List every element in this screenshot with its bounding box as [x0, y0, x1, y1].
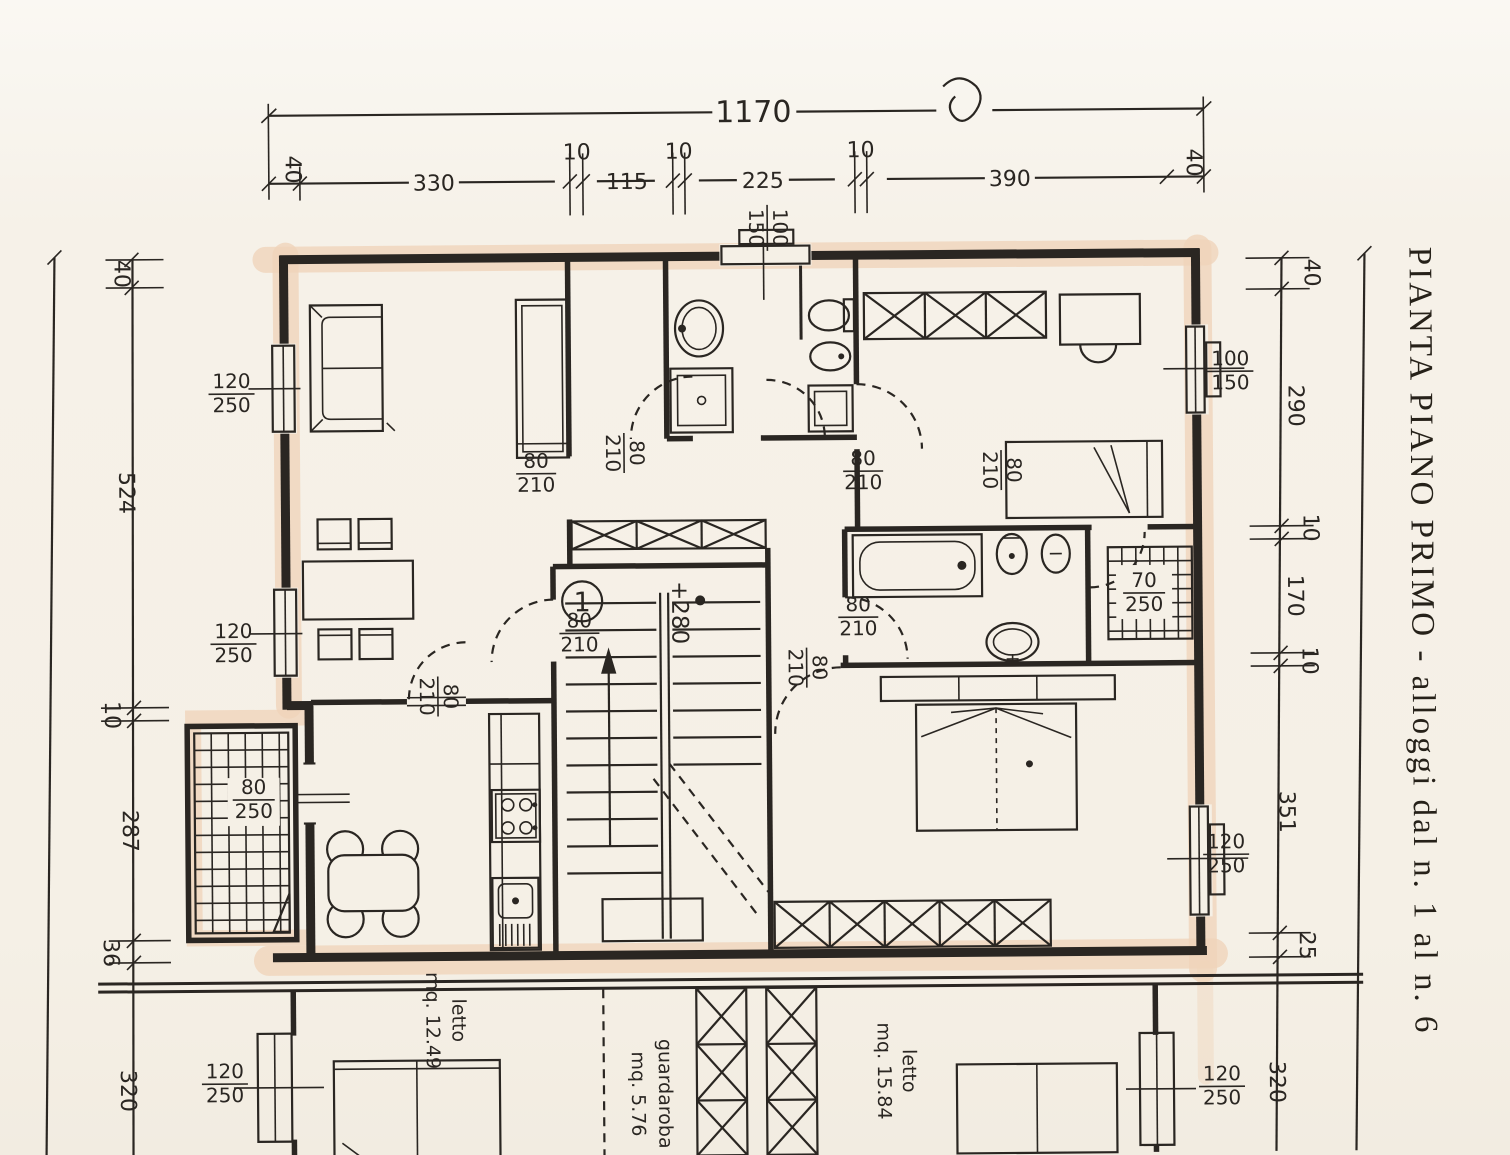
svg-text:250: 250 [214, 643, 252, 667]
svg-text:210: 210 [560, 632, 598, 656]
dim-label: 10 [847, 138, 875, 163]
dim-label: 40 [280, 156, 305, 184]
dim-label: 10 [1297, 647, 1322, 675]
window-size-label: 120 250 [1203, 829, 1249, 877]
dim-label: 290 [1282, 385, 1307, 427]
dim-label: 320 [115, 1070, 140, 1112]
pen-squiggle-mark [943, 78, 981, 121]
dim-label: 225 [742, 169, 784, 194]
sink-drainer [500, 924, 530, 946]
door-size-label: 80 210 [784, 647, 832, 687]
lower-floor-rooms [98, 974, 1364, 1155]
door-swing-arc [766, 379, 824, 437]
chair [318, 519, 351, 549]
chair [318, 629, 351, 659]
bathroom1-fixtures [630, 299, 922, 451]
dim-label: 390 [989, 167, 1031, 192]
svg-text:120: 120 [206, 1059, 244, 1083]
door-size-label: 80 210 [516, 449, 556, 497]
dimension-chains [38, 75, 1378, 1155]
window-size-label: 120 250 [1199, 1061, 1245, 1109]
svg-text:100: 100 [768, 209, 792, 247]
svg-text:80: 80 [439, 684, 463, 710]
floor-plan-canvas: 1170 40 330 10 115 10 225 10 390 40 40 5… [0, 0, 1510, 1155]
scanned-floor-plan-page: 1170 40 330 10 115 10 225 10 390 40 40 5… [0, 0, 1510, 1155]
dim-label: 36 [98, 939, 123, 967]
door-size-label: 80 210 [601, 433, 649, 473]
dim-label: 287 [117, 810, 142, 852]
stair-newel-dot [696, 596, 705, 605]
dim-label: 40 [1298, 259, 1323, 287]
svg-text:150: 150 [744, 209, 768, 247]
room-label-letto2: letto mq. 15.84 [872, 1022, 920, 1119]
svg-text:210: 210 [978, 451, 1002, 489]
headboard-shelf [881, 675, 1115, 701]
svg-text:120: 120 [212, 369, 250, 393]
svg-text:80: 80 [845, 592, 871, 616]
desk [1060, 294, 1140, 345]
door-size-label: 80 210 [843, 446, 883, 494]
window-symbols [247, 226, 1248, 924]
svg-text:letto: letto [447, 999, 469, 1043]
window-size-label: 120 250 [210, 619, 256, 667]
svg-text:80: 80 [625, 440, 649, 466]
room-label-letto1: letto mq. 12.49 [421, 972, 470, 1069]
svg-text:70: 70 [1131, 568, 1157, 592]
window-size-label: 120 250 [202, 1059, 248, 1107]
dim-label: 10 [99, 701, 124, 729]
svg-text:210: 210 [784, 648, 808, 686]
dim-label: 10 [665, 139, 693, 164]
svg-text:250: 250 [212, 393, 250, 417]
lower-wardrobe-strip [696, 988, 747, 1155]
dim-label: 115 [606, 170, 648, 195]
level-label: +280 [666, 581, 692, 644]
window-size-label: 120 250 [208, 369, 254, 417]
lower-wardrobe-strip [766, 988, 817, 1155]
desk-chair [1080, 344, 1116, 362]
dim-label: 10 [1297, 514, 1322, 542]
svg-text:250: 250 [1207, 853, 1245, 877]
dim-label: 330 [413, 171, 455, 196]
door-swing-arc [856, 384, 922, 450]
balcony-corner-mark [273, 894, 289, 932]
single-bed [1006, 441, 1163, 518]
dim-label: 524 [113, 472, 138, 514]
svg-text:210: 210 [844, 470, 882, 494]
door-size-label: 80 210 [415, 676, 463, 716]
svg-text:120: 120 [1203, 1061, 1241, 1085]
dim-label: 10 [563, 140, 591, 165]
svg-text:mq. 12.49: mq. 12.49 [421, 972, 444, 1069]
svg-text:mq. 5.76: mq. 5.76 [627, 1051, 650, 1136]
kitchen-table [328, 855, 418, 912]
bedroom1-wardrobe [864, 292, 1046, 339]
chair [359, 519, 392, 549]
room-label-guardaroba: guardaroba mq. 5.76 [627, 1039, 677, 1149]
dim-label: 320 [1264, 1061, 1289, 1103]
bedroom1-furniture [1005, 294, 1163, 518]
door-swing-arc [630, 376, 692, 438]
interior-walls [307, 253, 1198, 956]
overall-width-label: 1170 [715, 95, 792, 131]
stove [492, 790, 540, 842]
window-size-label: 100 150 [1207, 346, 1253, 394]
stair-break-line [669, 763, 768, 893]
svg-text:100: 100 [1211, 346, 1249, 370]
svg-text:80: 80 [1002, 457, 1026, 483]
door-size-label: 80 210 [978, 450, 1026, 490]
dim-label: 25 [1294, 932, 1319, 960]
svg-text:250: 250 [235, 799, 273, 823]
svg-text:210: 210 [415, 677, 439, 715]
partition-dashed [603, 989, 604, 1155]
svg-text:80: 80 [241, 775, 267, 799]
wardrobes [570, 292, 1051, 950]
kitchen-furniture [326, 714, 541, 952]
svg-text:210: 210 [601, 434, 625, 472]
balcony-tile-grid [194, 733, 290, 934]
svg-text:letto: letto [898, 1049, 920, 1093]
exterior-walls [267, 248, 1206, 958]
unit-number: 1 [573, 587, 590, 618]
svg-text:120: 120 [214, 619, 252, 643]
corridor-wardrobe [572, 520, 766, 550]
svg-text:80: 80 [850, 446, 876, 470]
svg-text:150: 150 [1211, 370, 1249, 394]
dining-table [303, 561, 413, 620]
door-size-label: 80 210 [838, 592, 878, 640]
svg-text:guardaroba: guardaroba [654, 1039, 677, 1149]
svg-text:250: 250 [1203, 1085, 1241, 1109]
kitchen-counter [489, 714, 541, 950]
living-room-furniture [301, 299, 571, 700]
balcony [187, 726, 297, 941]
dim-label: 40 [108, 260, 133, 288]
stair-direction-arrow [609, 659, 610, 846]
svg-text:80: 80 [523, 449, 549, 473]
svg-text:250: 250 [1125, 592, 1163, 616]
chair [359, 629, 392, 659]
svg-text:210: 210 [839, 616, 877, 640]
cabinet [516, 299, 569, 457]
svg-text:210: 210 [517, 473, 555, 497]
window-size-label: 100 150 [744, 205, 792, 251]
svg-text:mq. 15.84: mq. 15.84 [872, 1022, 895, 1119]
bedroom2-furniture [775, 665, 1116, 832]
svg-text:250: 250 [206, 1083, 244, 1107]
drawing-title: PIANTA PIANO PRIMO - alloggi dal n. 1 al… [1401, 247, 1443, 1036]
door-size-labels: 80 210 80 210 80 210 80 210 80 210 80 21… [413, 430, 1028, 717]
svg-text:120: 120 [1207, 829, 1245, 853]
entry-door-swing-arc [491, 600, 553, 662]
dim-label: 170 [1282, 575, 1307, 617]
svg-text:80: 80 [808, 655, 832, 681]
dim-label: 351 [1274, 791, 1299, 833]
dim-label: 40 [1181, 148, 1206, 176]
